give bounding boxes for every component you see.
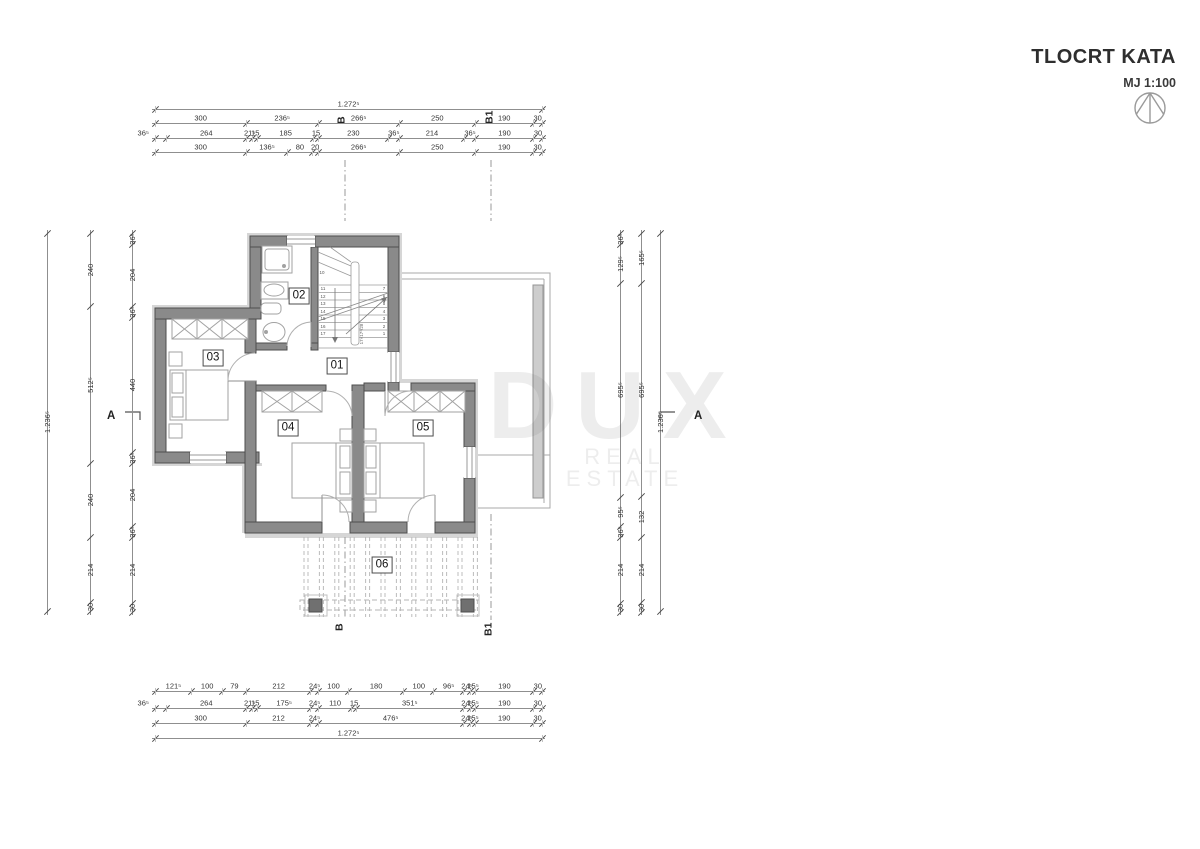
dim-label: 100 [201, 683, 214, 691]
dim-guide [348, 688, 349, 695]
dim-label: 300 [194, 715, 207, 723]
dim-guide [542, 720, 543, 727]
dim-label: 214 [426, 130, 439, 138]
dim-guide [155, 720, 156, 727]
dim-guide [246, 120, 247, 127]
dim-line [641, 230, 642, 615]
dim-guide [356, 705, 357, 712]
dim-label: 214 [617, 564, 625, 577]
dim-guide [257, 705, 258, 712]
dim-label: 695⁵ [617, 383, 625, 399]
dim-line [90, 230, 91, 615]
dim-guide [246, 688, 247, 695]
dim-guide [155, 120, 156, 127]
floor-plan-page: TLOCRT KATA MJ 1:100 [0, 0, 1200, 849]
dim-label: 190 [498, 130, 511, 138]
dim-guide [475, 149, 476, 156]
north-arrow-icon [1135, 93, 1165, 123]
wardrobe-room04 [262, 391, 322, 412]
dim-guide [542, 735, 543, 742]
dim-label: 1.236⁵ [657, 412, 665, 434]
dim-line [152, 123, 545, 124]
dim-label: 440 [129, 379, 137, 392]
dim-guide [318, 705, 319, 712]
stair-step-number: 17 [320, 332, 325, 337]
dim-label: 214 [129, 564, 137, 577]
dim-guide [155, 106, 156, 113]
dim-label: 212 [272, 683, 285, 691]
stair-step-number: 16 [320, 324, 325, 329]
dim-line [152, 723, 545, 724]
dim-label: 121⁵ [166, 683, 182, 691]
dim-guide [475, 688, 476, 695]
dim-label: 95⁵ [617, 506, 625, 517]
dim-guide [222, 688, 223, 695]
door-room02 [287, 322, 311, 347]
pergola-frame [300, 595, 479, 616]
section-marker-b1-bottom: B1 [483, 623, 494, 636]
pergola-dashed-beams [304, 537, 477, 617]
dim-label: 110 [329, 700, 341, 708]
door-terrace-room04 [322, 495, 349, 522]
dim-guide [155, 149, 156, 156]
dim-guide [542, 149, 543, 156]
door-room04 [326, 391, 352, 416]
room-label-01: 01 [327, 358, 348, 375]
dim-label: 30 [534, 715, 542, 723]
dim-guide [403, 688, 404, 695]
dim-label: 129⁵ [617, 256, 625, 272]
shower [262, 246, 292, 273]
dim-label: 190 [498, 700, 511, 708]
dim-line [152, 109, 545, 110]
dim-guide [155, 705, 156, 712]
dim-label: 300 [194, 144, 207, 152]
dim-label: 240 [87, 494, 95, 507]
stair-step-number: 15 [320, 317, 325, 322]
room-label-05: 05 [413, 420, 434, 437]
dim-line [152, 738, 545, 739]
wardrobe-room03 [172, 319, 248, 339]
stair-step-number: 7 [383, 287, 386, 292]
dim-label: 236⁵ [274, 115, 290, 123]
dim-label: 190 [498, 715, 511, 723]
dim-guide [433, 688, 434, 695]
dim-label: 214 [87, 564, 95, 577]
section-marker-b-bottom: B [335, 623, 346, 631]
room-label-02: 02 [289, 288, 310, 305]
dim-label: 30 [534, 683, 542, 691]
dim-guide [542, 106, 543, 113]
stair-step-number: 11 [321, 287, 326, 292]
bidet [263, 323, 285, 342]
dim-guide [399, 149, 400, 156]
room-label-06: 06 [372, 557, 393, 574]
dim-label: 214 [638, 564, 646, 577]
dim-guide [318, 688, 319, 695]
stair-step-number: 2 [383, 324, 386, 329]
dim-label: 230 [347, 130, 360, 138]
dim-guide [155, 135, 156, 142]
dim-guide [318, 149, 319, 156]
dim-guide [318, 135, 319, 142]
stair-step-number: 4 [383, 309, 386, 314]
dim-label: 266⁵ [351, 144, 367, 152]
dim-label: 512⁵ [87, 377, 95, 393]
dim-guide [155, 688, 156, 695]
dim-label: 190 [498, 683, 511, 691]
stair-step-number: 13 [320, 302, 325, 307]
dim-label: 1.272⁵ [338, 101, 360, 109]
dim-guide [399, 120, 400, 127]
section-marker-b1-top: B1 [484, 111, 495, 124]
dim-label: 36⁵ [464, 130, 475, 138]
stair-step-number: 5 [383, 302, 386, 307]
dim-label: 250 [431, 115, 444, 123]
dim-guide [399, 135, 400, 142]
sink [261, 282, 288, 299]
dim-guide [542, 688, 543, 695]
door-room03 [228, 353, 256, 381]
dim-label: 190 [498, 115, 511, 123]
staircase [318, 247, 388, 348]
section-marker-a-right: A [694, 411, 702, 423]
dim-label: 80 [296, 144, 304, 152]
dim-label: 264 [200, 130, 213, 138]
dim-label: 79 [230, 683, 238, 691]
dim-guide [542, 135, 543, 142]
dim-label: 180 [370, 683, 383, 691]
dim-line [132, 230, 133, 615]
dim-label: 96⁵ [443, 683, 454, 691]
dim-label: 100 [412, 683, 425, 691]
dim-label: 266⁵ [351, 115, 367, 123]
dim-label: 30 [534, 130, 542, 138]
stair-step-number: 12 [320, 294, 325, 299]
dim-label: 36⁵ [138, 130, 149, 138]
dim-guide [542, 705, 543, 712]
dim-label: 136⁵ [259, 144, 275, 152]
dim-label: 250 [431, 144, 444, 152]
dim-guide [246, 149, 247, 156]
dim-label: 100 [327, 683, 340, 691]
dim-guide [475, 720, 476, 727]
dim-label: 212 [272, 715, 285, 723]
dim-label: 36⁵ [138, 700, 149, 708]
stair-step-number: 6 [383, 294, 386, 299]
bed-room05 [364, 429, 424, 512]
dim-guide [166, 135, 167, 142]
dim-label: 30 [534, 144, 542, 152]
stair-step-number: 3 [383, 317, 386, 322]
dim-guide [475, 705, 476, 712]
dim-label: 240 [87, 264, 95, 277]
dim-guide [542, 120, 543, 127]
door-terrace-room05 [408, 495, 435, 522]
dim-label: 175⁵ [276, 700, 292, 708]
dim-guide [475, 120, 476, 127]
dim-line [620, 230, 621, 615]
dim-guide [155, 735, 156, 742]
room-label-03: 03 [203, 350, 224, 367]
dim-guide [318, 720, 319, 727]
dim-label: 165⁵ [638, 251, 646, 267]
dim-guide [257, 135, 258, 142]
dim-label: 30 [534, 115, 542, 123]
toilet [261, 303, 281, 314]
dim-guide [475, 135, 476, 142]
dim-label: 190 [498, 144, 511, 152]
dim-label: 264 [200, 700, 213, 708]
dim-label: 1.236⁵ [44, 412, 52, 434]
dim-label: 132 [638, 511, 646, 524]
dim-guide [191, 688, 192, 695]
dim-guide [166, 705, 167, 712]
wardrobe-room05 [388, 391, 465, 412]
dim-guide [246, 720, 247, 727]
dim-guide [287, 149, 288, 156]
dim-label: 695⁵ [638, 382, 646, 398]
dim-label: 30 [534, 700, 542, 708]
dim-line [152, 152, 545, 153]
dim-label: 351⁵ [402, 700, 418, 708]
dim-label: 1.272⁵ [338, 730, 360, 738]
stair-step-number: 14 [320, 309, 325, 314]
room-label-04: 04 [278, 420, 299, 437]
stair-step-number: 10 [319, 271, 324, 276]
dim-label: 476⁵ [383, 715, 399, 723]
dim-label: 204 [129, 489, 137, 502]
dim-label: 300 [194, 115, 207, 123]
stair-step-number: 1 [383, 332, 386, 337]
section-marker-a-left: A [107, 411, 115, 423]
dim-label: 204 [129, 269, 137, 282]
dim-label: 185 [279, 130, 292, 138]
stair-annotation: 17×17⁶/28 [360, 324, 365, 345]
floor-plan-drawing [0, 0, 1200, 849]
dim-line [152, 138, 546, 139]
dim-guide [318, 120, 319, 127]
dim-label: 36⁵ [388, 130, 399, 138]
